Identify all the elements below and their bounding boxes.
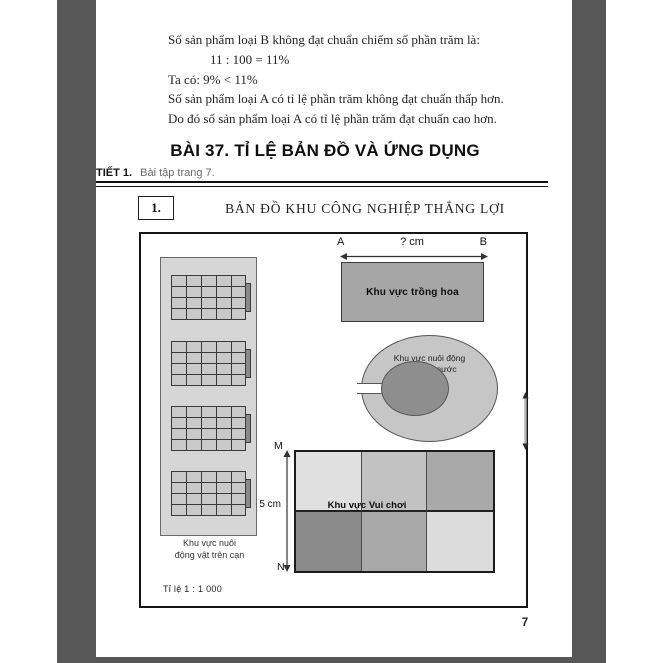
point-n-label: N	[277, 561, 285, 573]
flower-measure-row: A ? cm B	[337, 236, 487, 248]
map-scale-label: Tỉ lệ 1 : 1 000	[163, 584, 222, 594]
width-question-label: ? cm	[400, 236, 424, 248]
section-divider-rule	[96, 181, 548, 187]
point-a-label: A	[337, 236, 344, 248]
solution-line: Số sản phẩm loại B không đạt chuẩn chiếm…	[168, 30, 546, 50]
solution-line: Số sản phẩm loại A có tỉ lệ phần trăm kh…	[168, 89, 546, 109]
land-animal-area-label: Khu vực nuôi động vật trên cạn	[141, 537, 278, 561]
photo-backdrop-left-bar	[57, 0, 96, 663]
lesson-title: BÀI 37. TỈ LỆ BẢN ĐỒ VÀ ỨNG DỤNG	[105, 141, 545, 161]
solution-comparison: Ta có: 9% < 11%	[168, 70, 546, 90]
height-measure-arrow-icon	[282, 450, 292, 572]
land-label-line1: Khu vực nuôi	[141, 537, 278, 549]
play-area-cell	[296, 512, 362, 572]
exercise-number-box: 1.	[138, 196, 174, 220]
play-area-cell	[427, 452, 493, 512]
solution-equation: 11 : 100 = 11%	[168, 50, 546, 70]
flower-area-label: Khu vực trồng hoa	[366, 287, 459, 298]
play-area-grid: Khu vực Vui chơi	[294, 450, 495, 573]
point-b-label: B	[480, 236, 487, 248]
photo-backdrop-bottom-bar	[57, 657, 606, 663]
flower-area: Khu vực trồng hoa	[341, 262, 484, 322]
section-row: TIẾT 1. Bài tập trang 7.	[96, 167, 215, 179]
solution-conclusion: Do đó số sản phẩm loại A có tỉ lệ phần t…	[168, 109, 546, 129]
width-measure-arrow-icon	[340, 252, 488, 261]
play-area-cell	[362, 512, 428, 572]
solution-paragraph: Số sản phẩm loại B không đạt chuẩn chiếm…	[168, 30, 546, 129]
pond-label-line1: Khu vực nuôi động	[362, 353, 497, 364]
animal-cage-grid	[171, 471, 246, 516]
animal-cage-grid	[171, 406, 246, 451]
play-area-cell	[427, 512, 493, 572]
exercise-title: BẢN ĐỒ KHU CÔNG NGHIỆP THẮNG LỢI	[190, 201, 540, 217]
exercise-number: 1.	[151, 200, 161, 216]
land-animal-area	[160, 257, 257, 536]
height-dimension-label: 5 cm	[247, 499, 281, 510]
scanned-textbook-page: Số sản phẩm loại B không đạt chuẩn chiếm…	[0, 0, 663, 663]
industrial-park-map: Khu vực nuôi động vật trên cạn A ? cm B …	[139, 232, 528, 608]
animal-cage-grid	[171, 341, 246, 386]
page-number: 7	[514, 617, 536, 629]
section-label: TIẾT 1.	[96, 167, 132, 179]
section-note: Bài tập trang 7.	[140, 167, 215, 179]
frame-edge-measure-arrow-icon	[521, 392, 530, 450]
animal-cage-grid	[171, 275, 246, 320]
play-area-label: Khu vực Vui chơi	[298, 500, 436, 511]
land-label-line2: động vật trên cạn	[141, 549, 278, 561]
pond-island	[381, 361, 449, 416]
photo-backdrop-right-bar	[572, 0, 606, 663]
